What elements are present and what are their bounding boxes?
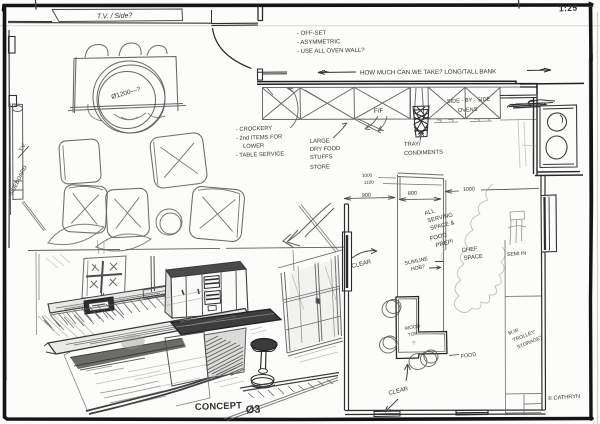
svg-text:- CROCKERY: - CROCKERY xyxy=(236,126,273,133)
svg-text:LOWER: LOWER xyxy=(243,143,264,150)
svg-text:800: 800 xyxy=(408,191,417,197)
svg-text:1:25: 1:25 xyxy=(559,3,578,14)
svg-text:DRY FOOD: DRY FOOD xyxy=(310,146,341,153)
svg-text:T.V. / Side?: T.V. / Side? xyxy=(97,13,133,21)
svg-text:HOW MUCH CAN WE TAKE? LONG/TA: HOW MUCH CAN WE TAKE? LONG/TALL BANK xyxy=(360,68,497,76)
svg-text:- USE ALL OVEN WALL?: - USE ALL OVEN WALL? xyxy=(297,48,365,55)
svg-text:- OFF-SET: - OFF-SET xyxy=(297,30,327,37)
svg-text:Ø3: Ø3 xyxy=(245,403,260,416)
svg-text:1000: 1000 xyxy=(463,187,475,193)
svg-text:STUFFS: STUFFS xyxy=(310,154,333,161)
svg-text:TRAY/: TRAY/ xyxy=(404,141,421,148)
svg-text:LARGE: LARGE xyxy=(310,138,330,145)
svg-text:1000: 1000 xyxy=(362,172,373,178)
svg-text:CONCEPT: CONCEPT xyxy=(195,399,243,412)
svg-text:1100: 1100 xyxy=(364,179,375,185)
svg-text:OVENS: OVENS xyxy=(458,107,478,114)
svg-text:- ASYMMETRIC: - ASYMMETRIC xyxy=(297,39,341,46)
svg-text:F/F: F/F xyxy=(374,108,384,115)
svg-text:STORE: STORE xyxy=(310,164,330,171)
